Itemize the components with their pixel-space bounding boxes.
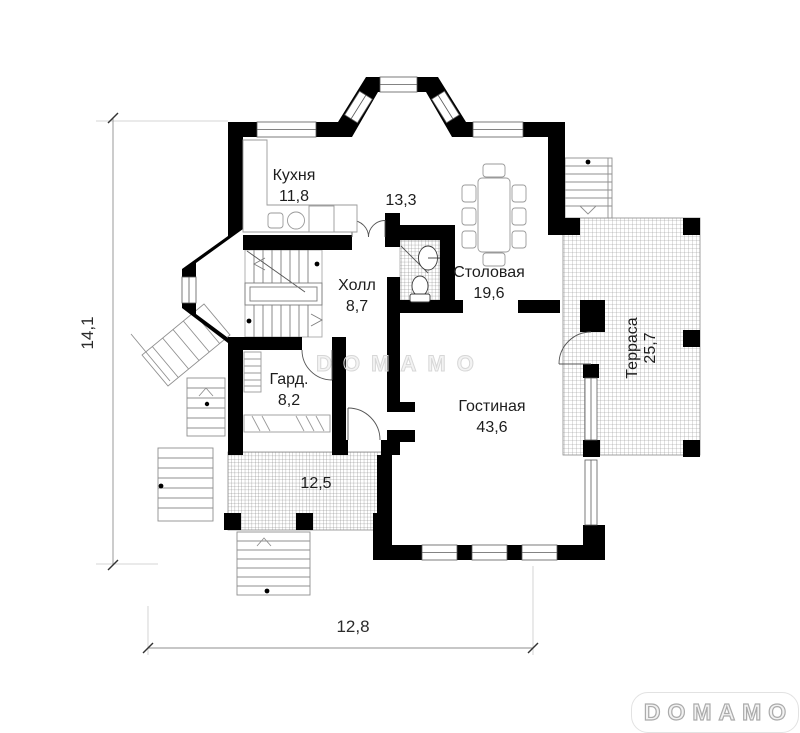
dining-table xyxy=(478,178,510,252)
living-south-window-3 xyxy=(522,545,557,560)
room-name: Гард. xyxy=(270,369,309,390)
room-label-terrace: Терраса 25,7 xyxy=(624,317,660,378)
room-name: Гостиная xyxy=(458,396,525,417)
dining-window xyxy=(473,122,523,137)
living-east-window-lower xyxy=(585,460,597,525)
main-staircase xyxy=(245,250,322,337)
living-east-window-upper xyxy=(585,378,597,440)
room-name: Кухня xyxy=(273,165,316,186)
side-angled-stairs xyxy=(131,304,230,436)
room-name: Холл xyxy=(338,275,376,296)
room-area: 43,6 xyxy=(458,417,525,438)
living-south-window-2 xyxy=(472,545,507,560)
room-area: 19,6 xyxy=(453,283,525,304)
bay-top-window xyxy=(380,77,417,92)
living-south-window-1 xyxy=(422,545,457,560)
room-area: 11,8 xyxy=(273,186,316,207)
room-area: 12,5 xyxy=(300,476,331,492)
porch-side-steps xyxy=(158,448,213,521)
watermark-logo-box: DOMAMO xyxy=(631,692,799,733)
dimension-left-label: 14,1 xyxy=(78,316,98,349)
kitchen-stove xyxy=(309,206,334,232)
watermark-logo-text: DOMAMO xyxy=(637,699,793,726)
room-name: Терраса xyxy=(624,317,642,378)
floor-plan-page: Кухня 11,8 13,3 Столовая 19,6 Холл 8,7 Г… xyxy=(0,0,800,733)
room-label-kitchen: Кухня 11,8 xyxy=(273,165,316,207)
watermark-center: DOMAMO xyxy=(305,351,485,377)
room-label-living: Гостиная 43,6 xyxy=(458,396,525,438)
room-area: 8,7 xyxy=(338,296,376,317)
room-area: 8,2 xyxy=(270,390,309,411)
front-steps xyxy=(237,532,310,595)
room-area: 25,7 xyxy=(642,317,660,378)
room-label-dining: Столовая 19,6 xyxy=(453,262,525,304)
kitchen-sink-right xyxy=(288,212,305,229)
terrace-entry-stairs xyxy=(565,158,612,218)
toilet-tank xyxy=(410,294,430,302)
room-label-open-area: 13,3 xyxy=(385,193,416,209)
room-label-porch: 12,5 xyxy=(300,476,331,492)
room-label-hall: Холл 8,7 xyxy=(338,275,376,317)
room-label-wardrobe: Гард. 8,2 xyxy=(270,369,309,411)
kitchen-sink-left xyxy=(268,213,283,228)
toilet-bowl xyxy=(412,276,428,296)
room-name: Столовая xyxy=(453,262,525,283)
kitchen-window xyxy=(257,122,316,137)
room-area: 13,3 xyxy=(385,193,416,209)
stair-bay-window xyxy=(182,277,196,303)
front-door xyxy=(348,408,380,440)
dining-table-set xyxy=(462,164,526,266)
dimension-bottom-label: 12,8 xyxy=(336,617,369,637)
